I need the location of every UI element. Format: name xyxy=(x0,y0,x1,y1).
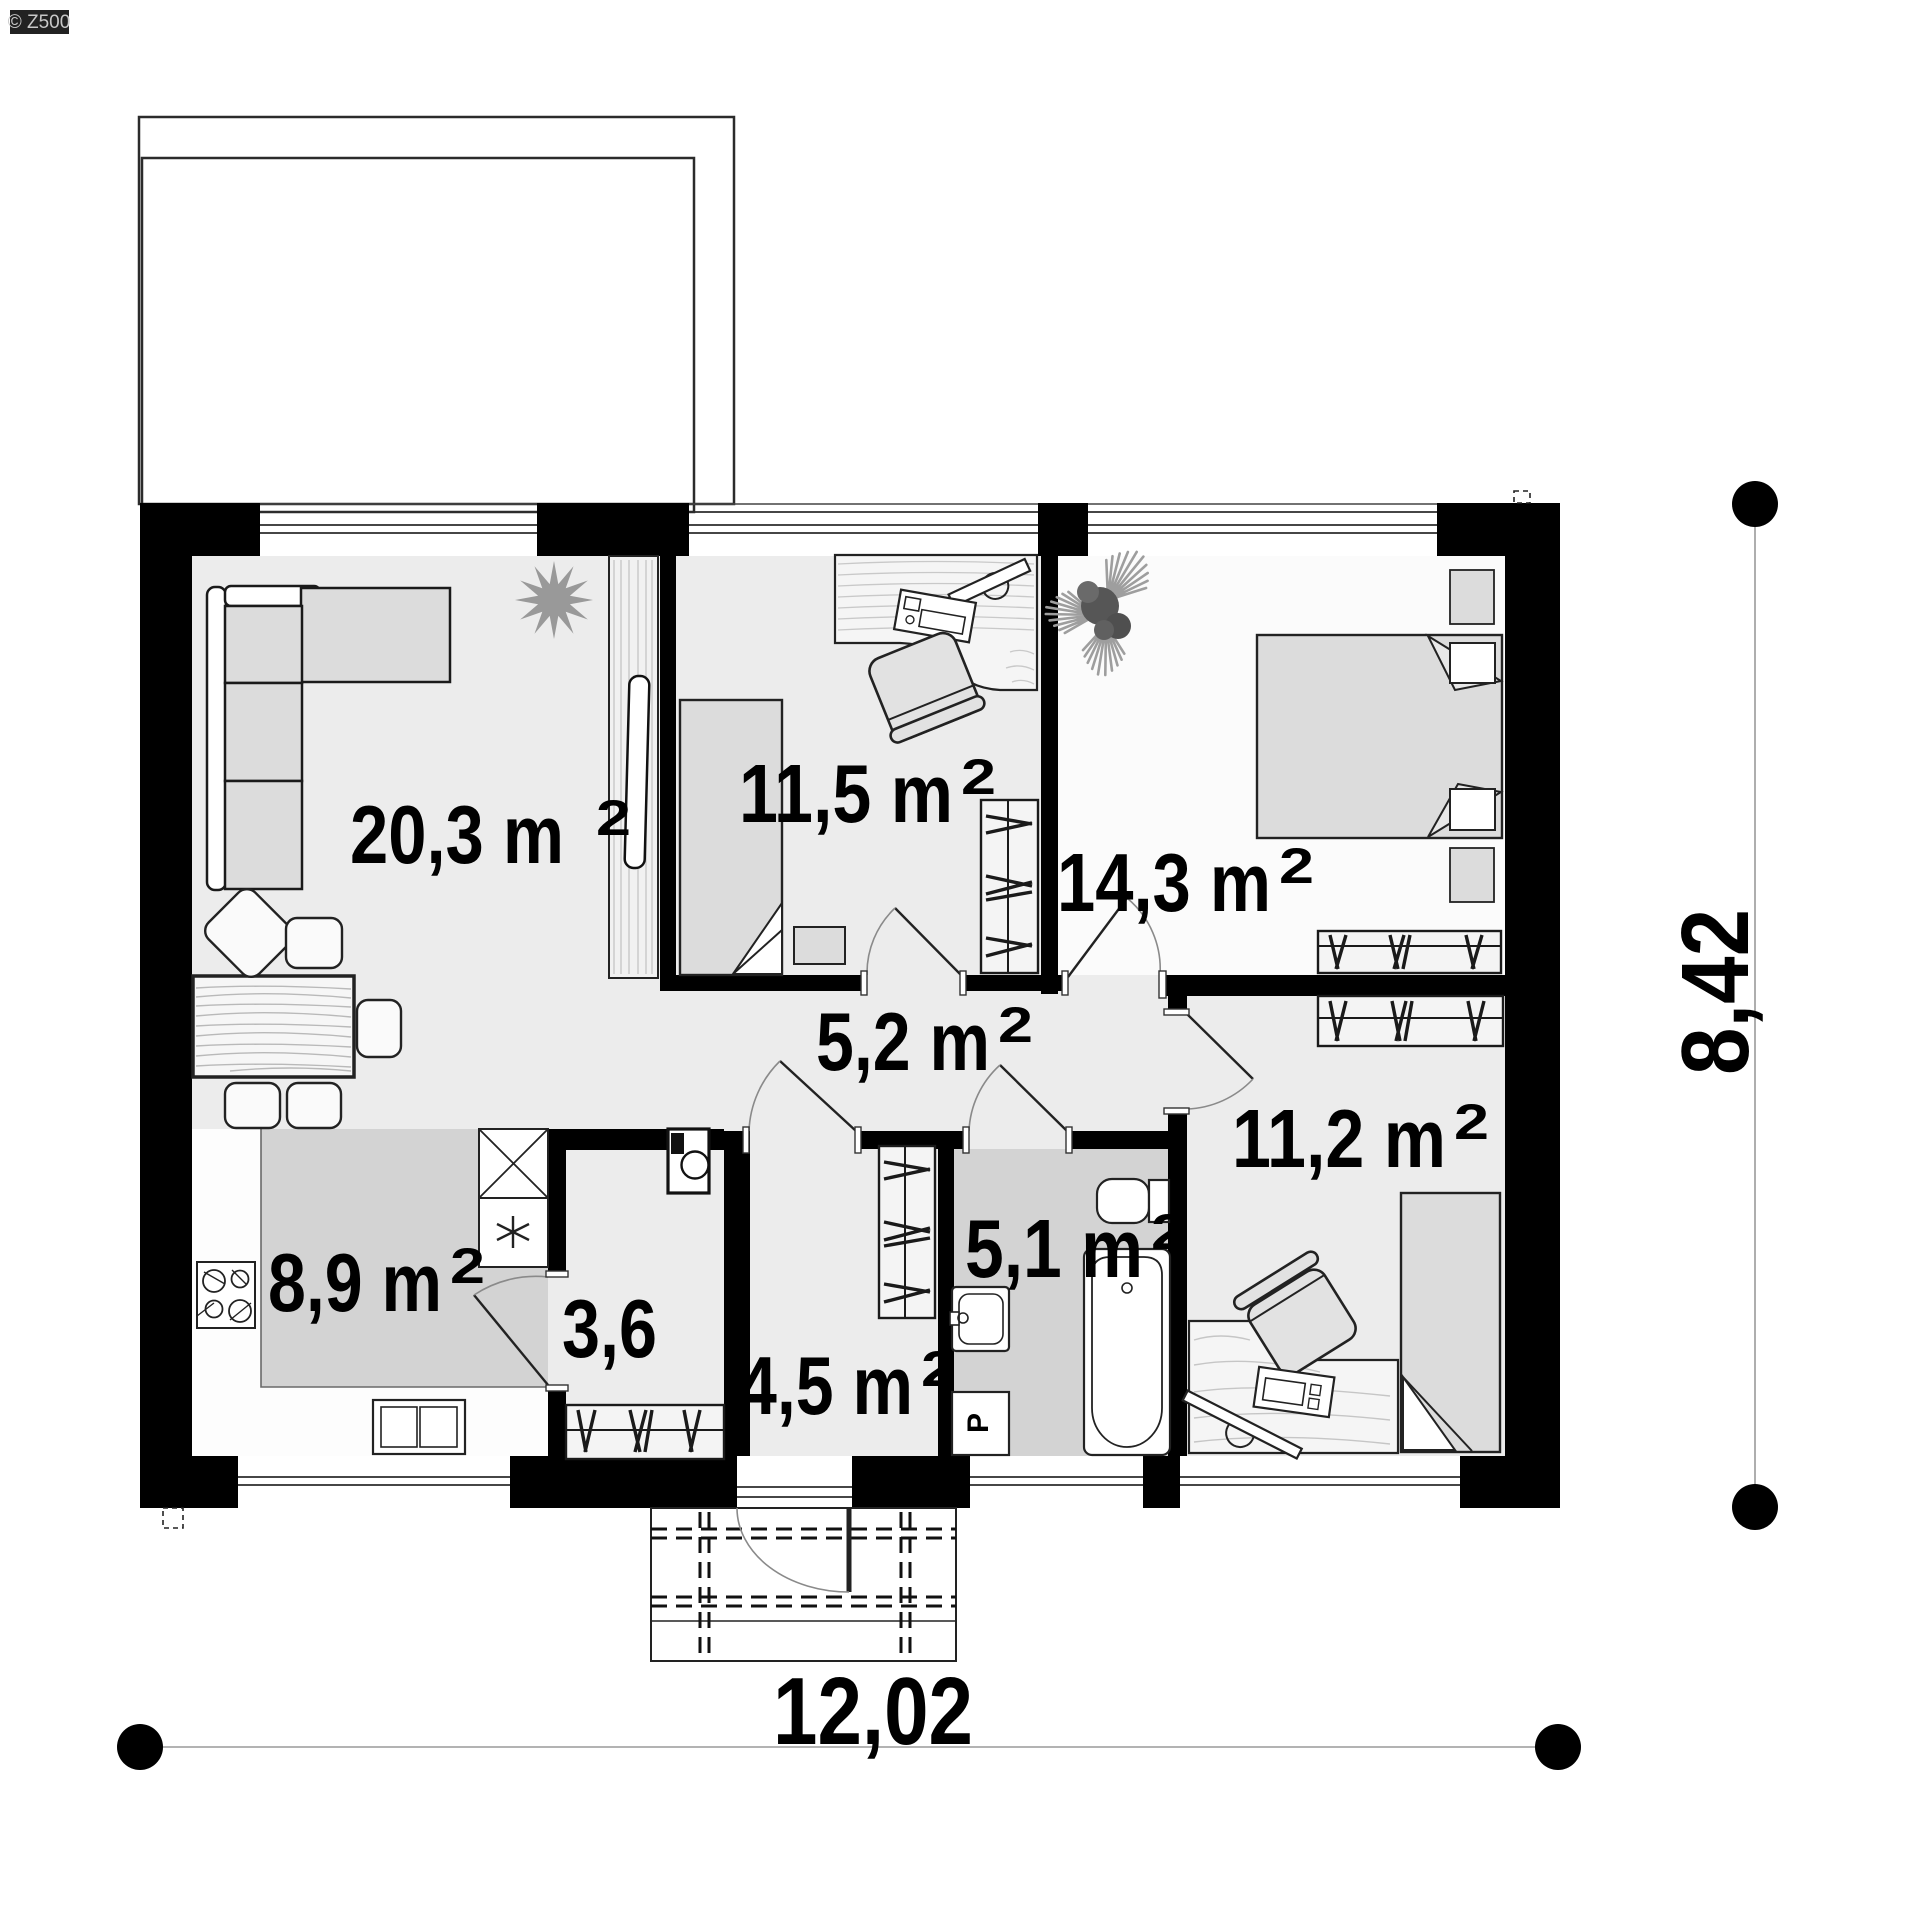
svg-text:20,3 m: 20,3 m xyxy=(350,788,564,881)
svg-text:5,2 m: 5,2 m xyxy=(816,995,990,1088)
svg-text:11,2 m: 11,2 m xyxy=(1232,1092,1446,1185)
svg-text:14,3 m: 14,3 m xyxy=(1057,836,1271,929)
svg-text:12,02: 12,02 xyxy=(773,1658,973,1765)
svg-text:P: P xyxy=(962,1413,995,1433)
svg-text:2: 2 xyxy=(1151,1204,1186,1260)
svg-text:8,42: 8,42 xyxy=(1662,909,1769,1075)
svg-text:2: 2 xyxy=(1279,838,1314,894)
svg-text:2: 2 xyxy=(450,1238,485,1294)
svg-text:2: 2 xyxy=(596,790,631,846)
svg-text:3,6: 3,6 xyxy=(562,1282,657,1375)
svg-text:2: 2 xyxy=(998,997,1033,1053)
svg-text:2: 2 xyxy=(961,749,996,805)
svg-text:4,5 m: 4,5 m xyxy=(739,1339,913,1432)
svg-text:2: 2 xyxy=(1454,1094,1489,1150)
svg-text:11,5 m: 11,5 m xyxy=(739,747,953,840)
svg-text:8,9 m: 8,9 m xyxy=(268,1236,442,1329)
svg-text:© Z500: © Z500 xyxy=(8,12,71,33)
svg-text:5,1 m: 5,1 m xyxy=(965,1202,1143,1295)
svg-text:2: 2 xyxy=(921,1341,956,1397)
